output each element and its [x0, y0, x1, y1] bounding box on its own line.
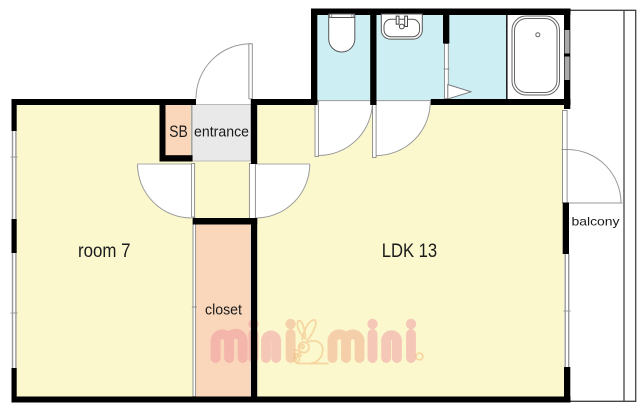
svg-text:room 7: room 7 — [78, 241, 131, 262]
svg-text:closet: closet — [205, 302, 243, 319]
svg-text:SB: SB — [169, 122, 188, 141]
svg-text:balcony: balcony — [572, 215, 620, 229]
svg-text:LDK 13: LDK 13 — [382, 240, 438, 262]
svg-text:entrance: entrance — [194, 124, 249, 141]
